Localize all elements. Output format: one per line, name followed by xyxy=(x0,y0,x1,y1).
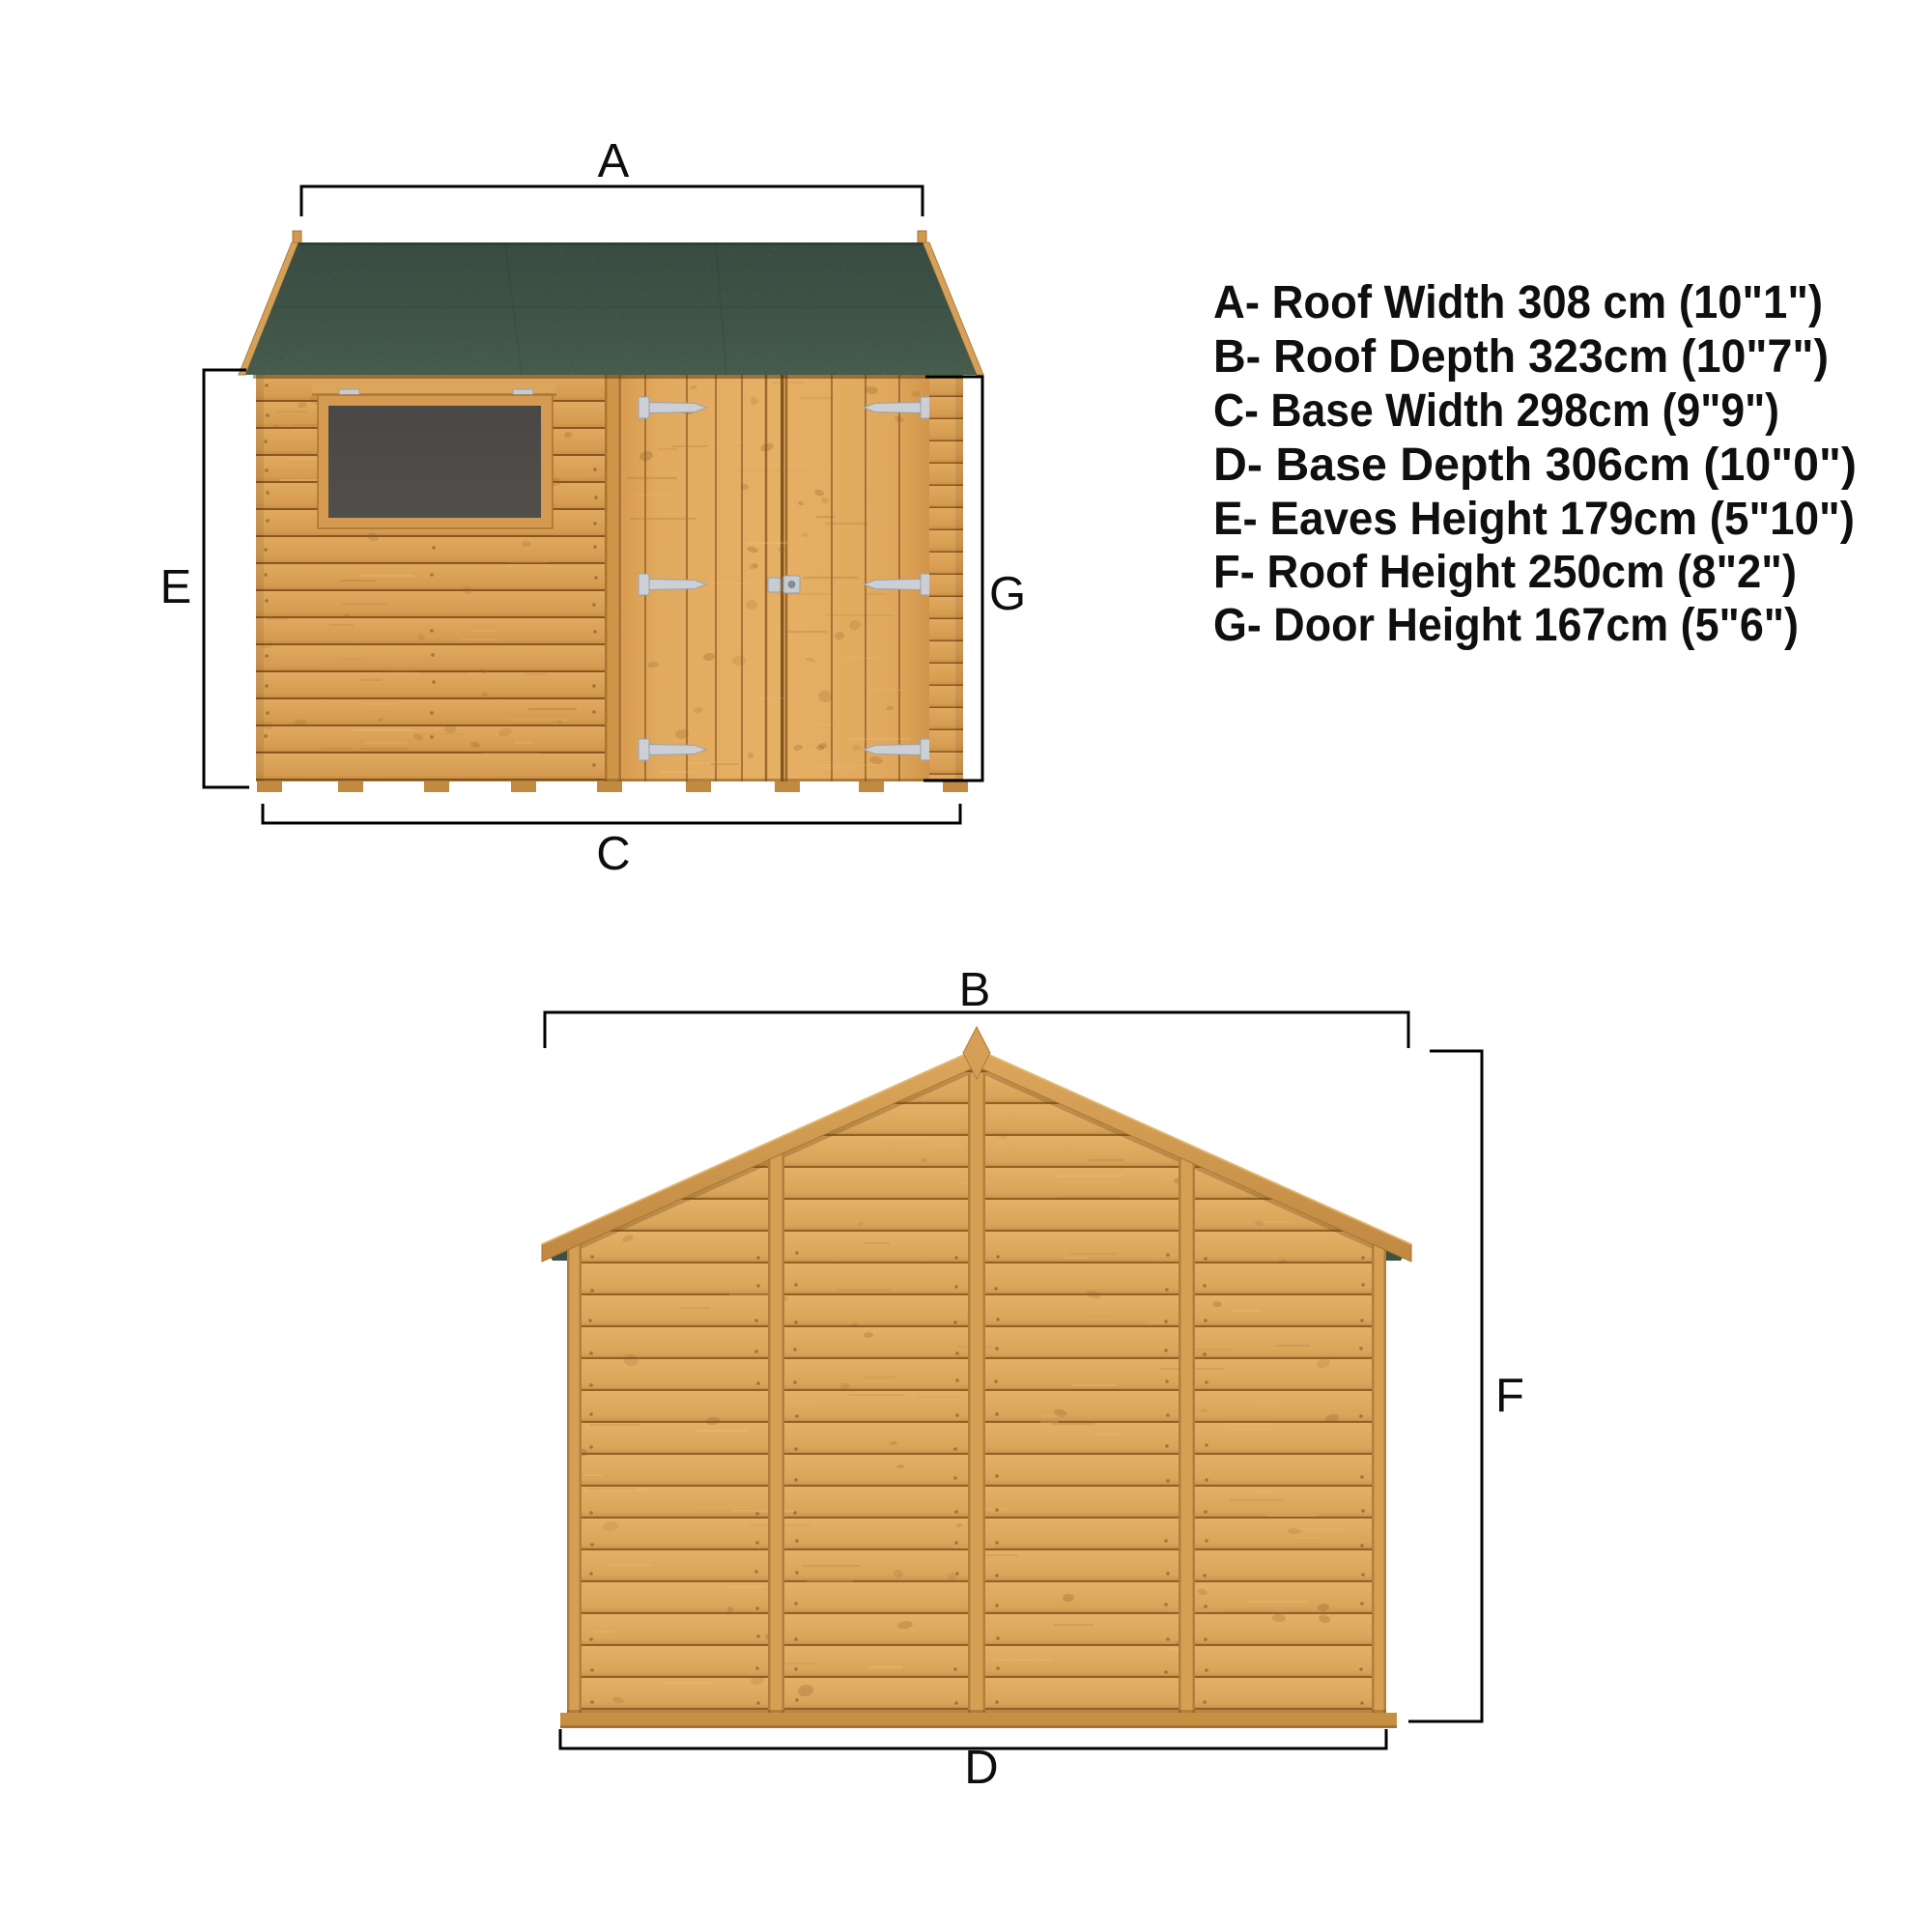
svg-text:A- Roof Width 308 cm (10"1"): A- Roof Width 308 cm (10"1") xyxy=(1213,277,1823,328)
svg-text:D- Base Depth 306cm (10"0"): D- Base Depth 306cm (10"0") xyxy=(1213,440,1857,491)
svg-text:D: D xyxy=(964,1742,998,1794)
svg-text:F- Roof Height 250cm (8"2"): F- Roof Height 250cm (8"2") xyxy=(1213,547,1797,598)
svg-text:C: C xyxy=(596,828,630,880)
svg-text:B- Roof Depth 323cm (10"7"): B- Roof Depth 323cm (10"7") xyxy=(1213,331,1829,383)
svg-text:A: A xyxy=(598,135,630,187)
svg-text:G: G xyxy=(989,568,1026,620)
svg-text:C- Base Width 298cm (9"9"): C- Base Width 298cm (9"9") xyxy=(1213,385,1779,437)
svg-text:F: F xyxy=(1495,1370,1524,1422)
svg-text:E- Eaves Height 179cm (5"10"): E- Eaves Height 179cm (5"10") xyxy=(1213,494,1855,545)
svg-text:G- Door Height 167cm (5"6"): G- Door Height 167cm (5"6") xyxy=(1213,600,1799,651)
svg-text:E: E xyxy=(160,561,192,613)
svg-text:B: B xyxy=(959,964,991,1016)
